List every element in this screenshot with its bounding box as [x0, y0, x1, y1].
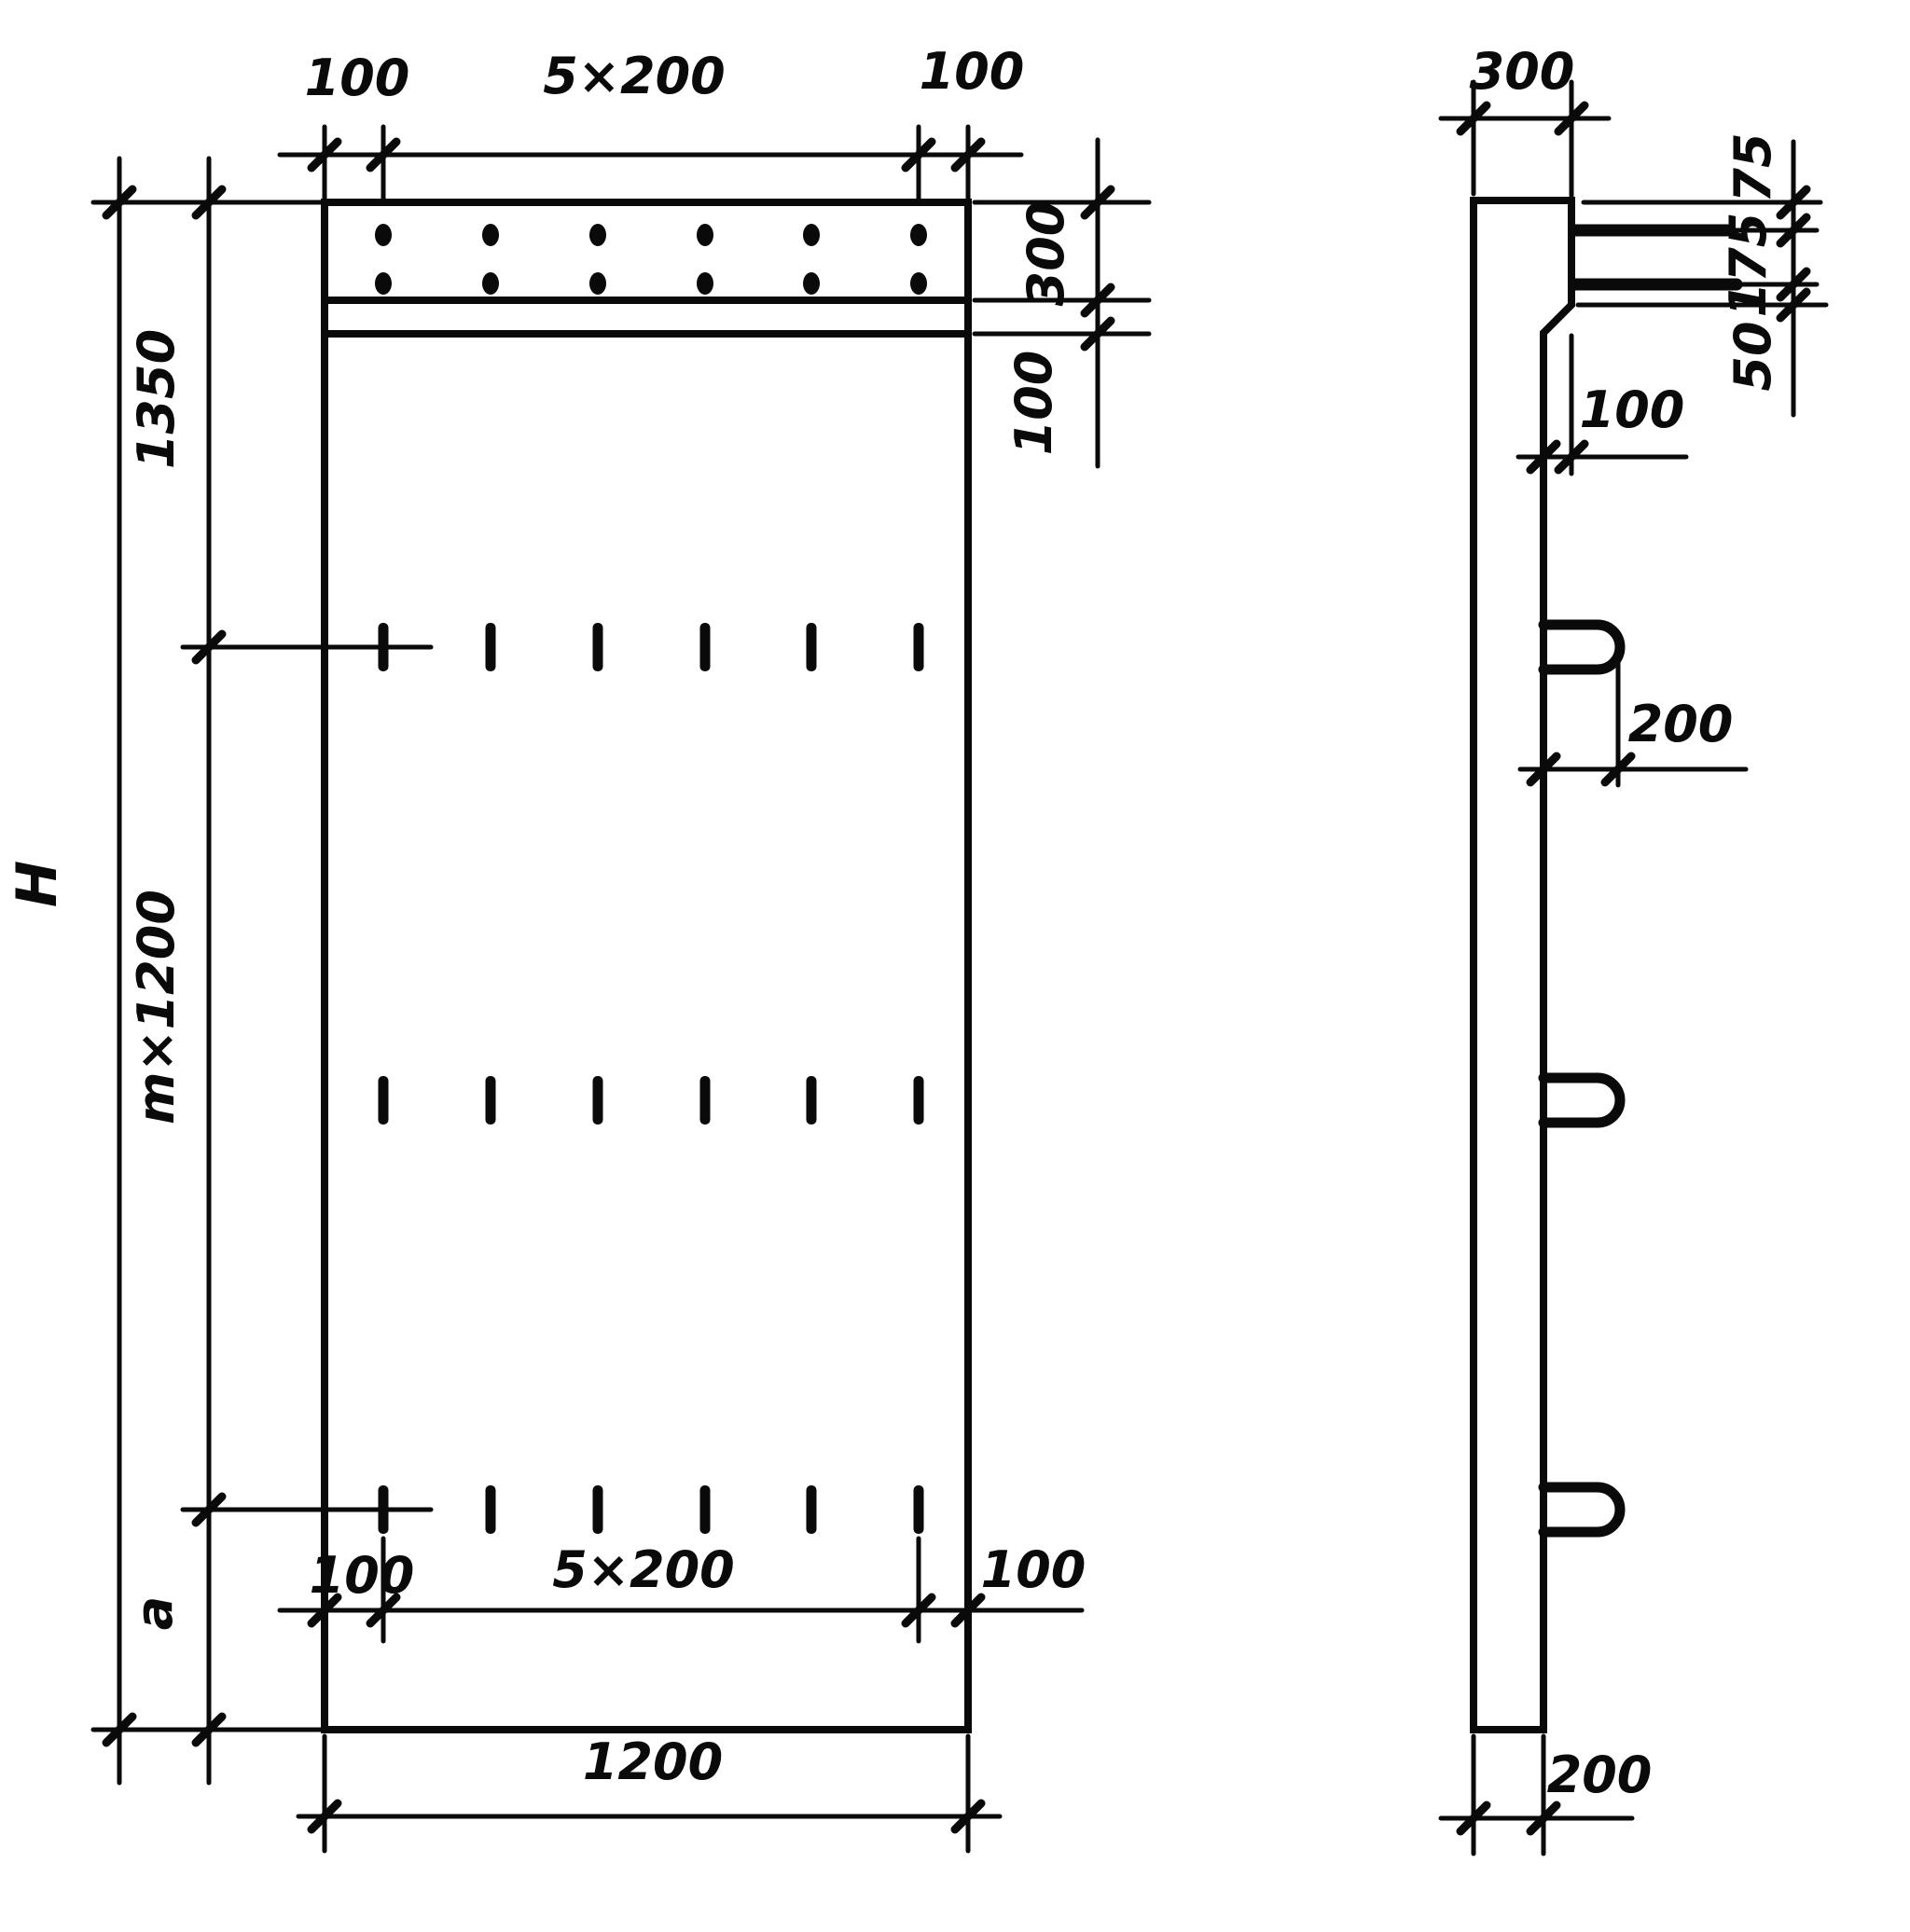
dim-top-right-100: 100 — [920, 42, 1025, 101]
front-view: 100 5×200 100 300 100 — [5, 42, 1149, 1851]
dim-band-300: 300 — [1017, 201, 1075, 307]
dim-thickness-200: 200 — [1547, 1746, 1653, 1804]
dim-bar-50: 50 — [1723, 321, 1782, 391]
dim-bottom-spacing: 5×200 — [552, 1540, 735, 1599]
dim-ledge-100: 100 — [1004, 351, 1063, 456]
front-panel-outline — [325, 202, 968, 1730]
loop-marks-row-2 — [379, 1076, 924, 1125]
side-view: 300 75 175 50 100 — [1441, 42, 1826, 1854]
front-panel-body — [325, 202, 968, 1730]
dim-bar-75: 75 — [1723, 132, 1782, 202]
front-right-dimension: 300 100 — [975, 140, 1149, 466]
front-bottom-outer-dimension: 1200 — [298, 1732, 1000, 1851]
dim-a: a — [125, 1596, 184, 1630]
dim-overall-H: H — [5, 861, 70, 907]
side-panel-outline — [1474, 200, 1571, 1730]
front-left-dimension: 1350 H m×1200 a — [5, 159, 431, 1783]
side-bottom-dimension: 200 — [1441, 1736, 1652, 1854]
side-bar-dimension: 75 175 50 — [1578, 132, 1826, 415]
dim-top-left-100: 100 — [305, 48, 410, 107]
loop-marks-row-3 — [379, 1485, 924, 1534]
dim-bottom-left-100: 100 — [310, 1546, 415, 1605]
rebar-dots — [375, 224, 927, 295]
loop-marks-row-1 — [379, 623, 924, 671]
dim-loop-200: 200 — [1628, 695, 1734, 753]
dim-step-100: 100 — [1580, 380, 1685, 439]
dim-1350: 1350 — [127, 329, 186, 469]
dim-bar-175: 175 — [1719, 213, 1778, 318]
dim-bottom-right-100: 100 — [981, 1540, 1086, 1599]
panel-technical-drawing: 100 5×200 100 300 100 — [0, 0, 1910, 1932]
side-loop-3 — [1543, 1487, 1620, 1532]
dim-top-spacing: 5×200 — [543, 47, 726, 105]
drawing-sheet: 100 5×200 100 300 100 — [0, 0, 1910, 1932]
side-loop-1 — [1543, 625, 1620, 669]
dim-m-1200: m×1200 — [127, 890, 186, 1125]
dim-side-300: 300 — [1470, 42, 1575, 101]
dim-width-1200: 1200 — [583, 1732, 723, 1791]
front-top-dimension: 100 5×200 100 — [280, 42, 1024, 200]
side-loop-2 — [1543, 1078, 1620, 1123]
side-top-dimension: 300 — [1441, 42, 1609, 196]
